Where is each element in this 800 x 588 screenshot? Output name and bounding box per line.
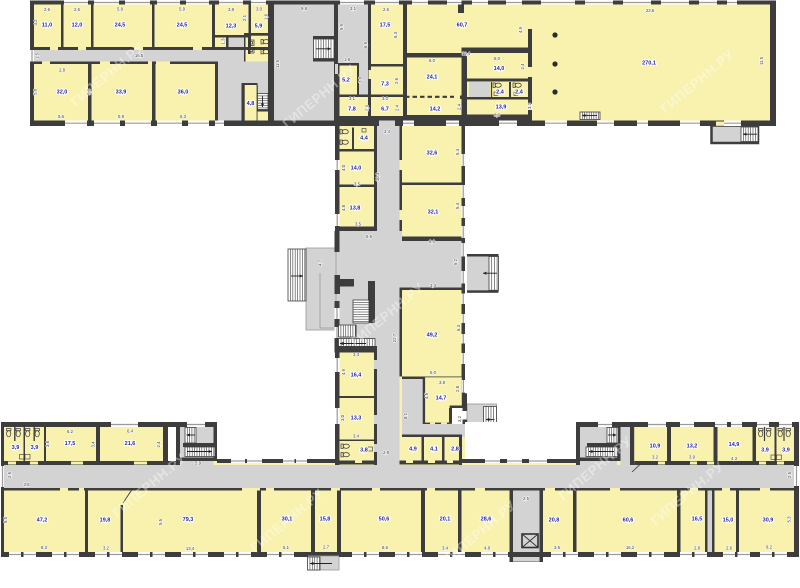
svg-text:3,3: 3,3 — [527, 102, 532, 109]
svg-text:3,8: 3,8 — [360, 447, 368, 453]
svg-text:6,7: 6,7 — [381, 106, 389, 112]
svg-text:2,8: 2,8 — [455, 385, 460, 392]
svg-text:2,4: 2,4 — [496, 89, 505, 95]
svg-text:32,6: 32,6 — [427, 150, 438, 156]
svg-text:3,5: 3,5 — [355, 222, 362, 227]
svg-text:3,4: 3,4 — [353, 434, 360, 439]
svg-text:6,6: 6,6 — [366, 234, 373, 239]
svg-text:6,9: 6,9 — [363, 41, 368, 48]
svg-text:15,0: 15,0 — [723, 517, 734, 523]
svg-text:49,2: 49,2 — [427, 332, 438, 338]
svg-text:1,3: 1,3 — [221, 38, 226, 45]
svg-text:5,9: 5,9 — [117, 7, 124, 12]
svg-text:3,9: 3,9 — [689, 455, 696, 460]
svg-text:5,2: 5,2 — [342, 77, 350, 83]
svg-text:3,0: 3,0 — [340, 414, 345, 421]
svg-text:4,2: 4,2 — [33, 19, 38, 26]
svg-text:14,7: 14,7 — [436, 395, 447, 401]
svg-text:7,8: 7,8 — [348, 106, 356, 112]
svg-text:5,9: 5,9 — [255, 23, 263, 29]
svg-text:17,5: 17,5 — [65, 441, 76, 447]
svg-text:13,4: 13,4 — [186, 546, 195, 551]
svg-text:5,2: 5,2 — [453, 258, 458, 265]
svg-text:13,9: 13,9 — [496, 104, 507, 110]
svg-text:6,3: 6,3 — [456, 324, 461, 331]
svg-text:5,4: 5,4 — [455, 202, 460, 209]
svg-text:5,8: 5,8 — [33, 88, 38, 95]
svg-text:32,1: 32,1 — [428, 209, 439, 215]
svg-text:270,1: 270,1 — [642, 60, 656, 66]
svg-text:5,6: 5,6 — [58, 114, 65, 119]
svg-text:3,6: 3,6 — [45, 440, 50, 447]
svg-text:8,3: 8,3 — [41, 545, 48, 550]
svg-text:2,8: 2,8 — [451, 446, 459, 452]
svg-text:60,7: 60,7 — [457, 22, 468, 28]
svg-text:10,9: 10,9 — [650, 443, 661, 449]
svg-text:3,0: 3,0 — [382, 96, 389, 101]
svg-text:16,5: 16,5 — [135, 53, 144, 58]
svg-text:16,5: 16,5 — [692, 516, 703, 522]
svg-text:4,8: 4,8 — [247, 101, 255, 107]
svg-text:1,5: 1,5 — [35, 52, 40, 59]
svg-text:3,9: 3,9 — [12, 445, 20, 451]
svg-text:3,8: 3,8 — [228, 7, 235, 12]
svg-text:3,4: 3,4 — [430, 283, 437, 288]
svg-text:2,6: 2,6 — [44, 7, 51, 12]
svg-text:3,1: 3,1 — [350, 6, 357, 11]
svg-text:47,2: 47,2 — [37, 517, 48, 523]
svg-text:6,3: 6,3 — [393, 31, 398, 38]
svg-text:2,4: 2,4 — [515, 89, 524, 95]
svg-text:20,1: 20,1 — [440, 516, 451, 522]
svg-text:30,9: 30,9 — [763, 517, 774, 523]
svg-text:8,1: 8,1 — [403, 412, 408, 419]
svg-text:2,6: 2,6 — [383, 7, 390, 12]
svg-text:3,0: 3,0 — [256, 7, 263, 12]
svg-text:3,2: 3,2 — [652, 455, 659, 460]
svg-text:12,3: 12,3 — [226, 23, 237, 29]
svg-text:13,3: 13,3 — [351, 415, 362, 421]
svg-text:60,6: 60,6 — [623, 517, 634, 523]
svg-text:4,8: 4,8 — [341, 204, 346, 211]
svg-text:5,4: 5,4 — [455, 148, 460, 155]
svg-text:5,8: 5,8 — [87, 88, 92, 95]
svg-text:16,2: 16,2 — [626, 545, 635, 550]
svg-text:7,3: 7,3 — [381, 81, 389, 87]
svg-text:5,9: 5,9 — [118, 114, 125, 119]
svg-text:14,0: 14,0 — [351, 165, 362, 171]
svg-text:4,8: 4,8 — [484, 546, 491, 551]
svg-text:4,5: 4,5 — [424, 392, 429, 399]
svg-text:14,0: 14,0 — [494, 66, 505, 72]
svg-text:9,8: 9,8 — [301, 6, 308, 11]
svg-text:2,5: 2,5 — [523, 496, 530, 501]
svg-text:3,5: 3,5 — [554, 545, 561, 550]
svg-text:3,4: 3,4 — [442, 546, 449, 551]
svg-text:3,8: 3,8 — [358, 76, 363, 83]
svg-text:3,8: 3,8 — [439, 380, 446, 385]
svg-text:6,4: 6,4 — [127, 429, 134, 434]
svg-text:24,5: 24,5 — [177, 22, 188, 28]
svg-text:22,7: 22,7 — [392, 333, 397, 342]
svg-text:5,5: 5,5 — [3, 516, 8, 523]
svg-text:3,1: 3,1 — [349, 96, 356, 101]
svg-text:2,1: 2,1 — [242, 14, 247, 21]
svg-text:3,4: 3,4 — [353, 352, 360, 357]
svg-text:2,5: 2,5 — [7, 471, 12, 478]
svg-text:12,4: 12,4 — [462, 51, 471, 56]
svg-text:1,8: 1,8 — [344, 57, 351, 62]
svg-text:11,5: 11,5 — [275, 59, 280, 68]
svg-text:2,4: 2,4 — [156, 441, 161, 448]
svg-text:2,6: 2,6 — [74, 7, 81, 12]
svg-text:10,3: 10,3 — [375, 172, 380, 181]
svg-text:16,4: 16,4 — [351, 372, 363, 378]
svg-text:28,6: 28,6 — [481, 516, 492, 522]
svg-text:13,8: 13,8 — [350, 205, 361, 211]
svg-text:2,6: 2,6 — [726, 546, 733, 551]
svg-text:9,2: 9,2 — [766, 545, 773, 550]
svg-text:23,6: 23,6 — [646, 8, 655, 13]
svg-text:79,3: 79,3 — [183, 517, 194, 523]
svg-text:6,0: 6,0 — [429, 58, 436, 63]
svg-text:6,0: 6,0 — [430, 370, 437, 375]
svg-text:5,3: 5,3 — [787, 516, 792, 523]
svg-text:8,0: 8,0 — [429, 239, 436, 244]
svg-text:6,3: 6,3 — [180, 114, 187, 119]
svg-text:5,1: 5,1 — [283, 545, 290, 550]
svg-text:2,5: 2,5 — [787, 471, 792, 478]
svg-text:3,9: 3,9 — [31, 445, 39, 451]
svg-text:14,2: 14,2 — [430, 106, 441, 112]
svg-text:4,7: 4,7 — [318, 259, 323, 266]
svg-text:6,0: 6,0 — [494, 56, 501, 61]
svg-text:5,9: 5,9 — [339, 23, 344, 30]
svg-text:3,4: 3,4 — [91, 441, 96, 448]
svg-text:2,6: 2,6 — [394, 77, 399, 84]
svg-text:4,9: 4,9 — [341, 368, 346, 375]
svg-text:3,9: 3,9 — [782, 447, 790, 453]
svg-text:4,9: 4,9 — [409, 446, 417, 452]
svg-text:3,8: 3,8 — [24, 482, 31, 487]
svg-text:33,9: 33,9 — [116, 89, 127, 95]
svg-text:19,8: 19,8 — [100, 517, 111, 523]
svg-text:8,0: 8,0 — [494, 113, 501, 118]
svg-text:5,9: 5,9 — [195, 461, 202, 466]
svg-text:2,4: 2,4 — [520, 63, 525, 70]
svg-text:14,9: 14,9 — [729, 442, 740, 448]
svg-text:2,8: 2,8 — [59, 68, 66, 73]
svg-text:4,1: 4,1 — [430, 446, 438, 452]
svg-text:4,0: 4,0 — [341, 164, 346, 171]
svg-text:11,0: 11,0 — [42, 22, 52, 28]
svg-text:11,5: 11,5 — [759, 56, 764, 65]
svg-text:24,5: 24,5 — [115, 22, 126, 28]
svg-text:5,9: 5,9 — [179, 7, 186, 12]
svg-text:4,9: 4,9 — [518, 26, 523, 33]
svg-text:2,8: 2,8 — [383, 450, 390, 455]
svg-text:4,3: 4,3 — [731, 456, 738, 461]
svg-text:2,8: 2,8 — [694, 546, 701, 551]
svg-text:1,6: 1,6 — [264, 13, 269, 20]
svg-text:3,5: 3,5 — [354, 182, 361, 187]
svg-text:2,4: 2,4 — [395, 104, 400, 111]
svg-text:4,4: 4,4 — [360, 135, 369, 141]
svg-text:6,2: 6,2 — [67, 429, 74, 434]
svg-text:3,9: 3,9 — [761, 447, 769, 453]
svg-text:2,7: 2,7 — [323, 545, 330, 550]
svg-text:24,1: 24,1 — [427, 74, 438, 80]
svg-text:13,2: 13,2 — [687, 443, 698, 449]
svg-text:21,6: 21,6 — [125, 441, 136, 447]
svg-text:3,2: 3,2 — [103, 546, 110, 551]
svg-text:30,1: 30,1 — [282, 516, 293, 522]
svg-text:20,8: 20,8 — [549, 517, 560, 523]
svg-text:50,6: 50,6 — [379, 516, 390, 522]
svg-text:36,0: 36,0 — [178, 89, 189, 95]
svg-text:17,5: 17,5 — [380, 22, 391, 28]
svg-text:3,4: 3,4 — [384, 129, 391, 134]
svg-text:5,5: 5,5 — [158, 518, 163, 525]
svg-text:12,0: 12,0 — [72, 22, 83, 28]
svg-text:3,2: 3,2 — [457, 415, 462, 422]
svg-text:2,4: 2,4 — [457, 103, 462, 110]
svg-text:32,0: 32,0 — [57, 89, 68, 95]
svg-text:8,6: 8,6 — [382, 545, 389, 550]
svg-text:15,8: 15,8 — [320, 516, 331, 522]
svg-text:2,9: 2,9 — [365, 104, 370, 111]
